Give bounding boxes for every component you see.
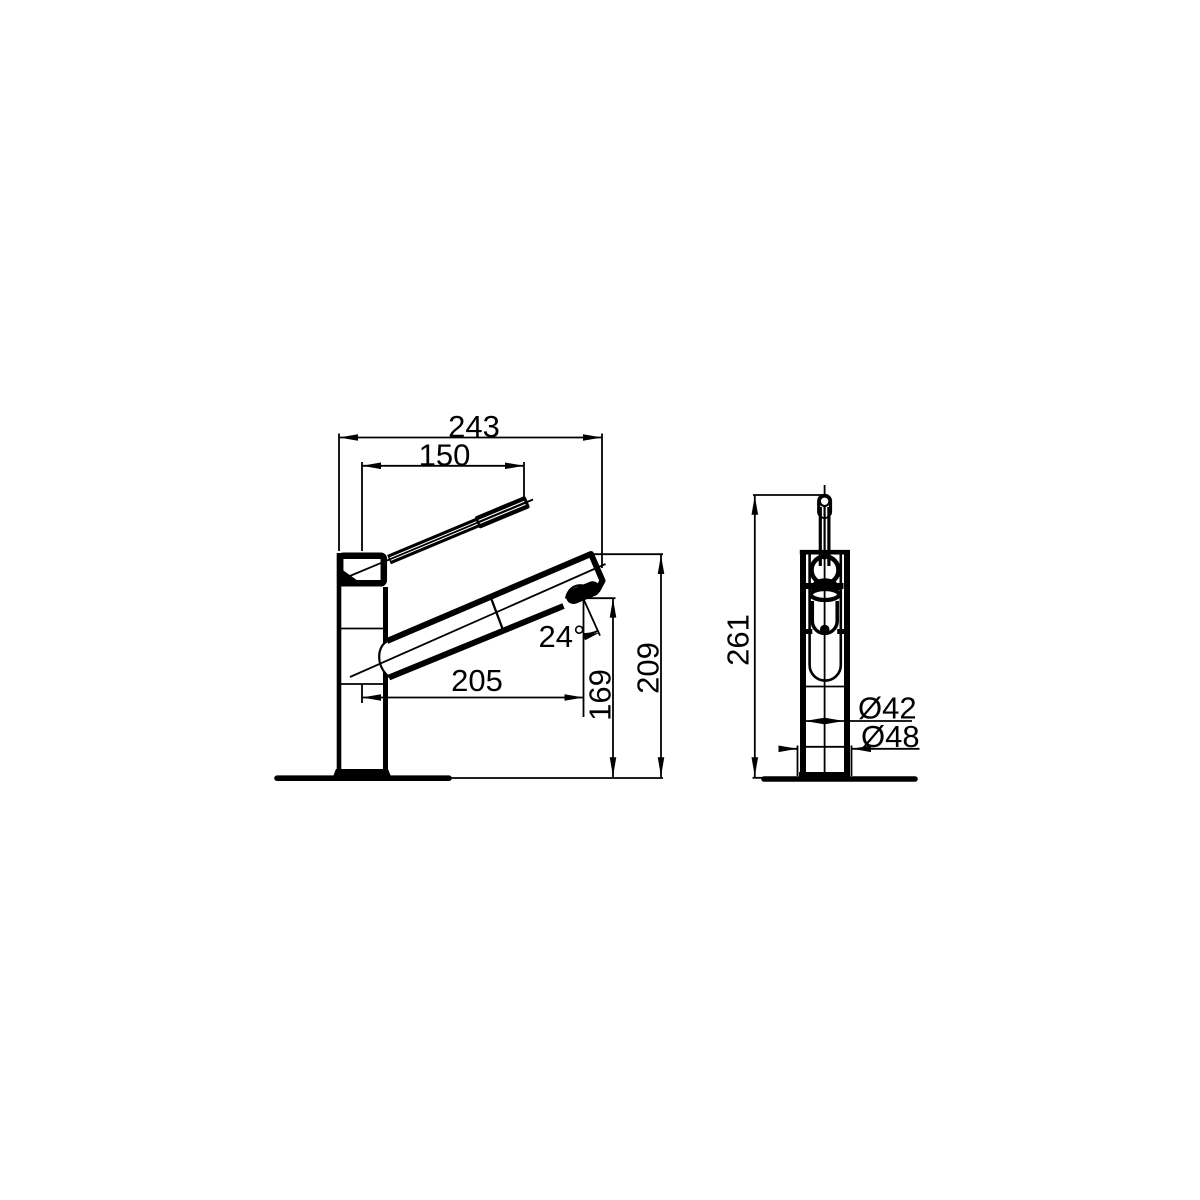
- svg-text:205: 205: [451, 663, 503, 698]
- svg-text:24°: 24°: [539, 619, 586, 654]
- svg-text:169: 169: [583, 669, 618, 721]
- svg-text:209: 209: [631, 642, 666, 694]
- svg-text:261: 261: [721, 614, 756, 666]
- svg-text:150: 150: [419, 437, 471, 472]
- svg-text:Ø48: Ø48: [861, 719, 920, 754]
